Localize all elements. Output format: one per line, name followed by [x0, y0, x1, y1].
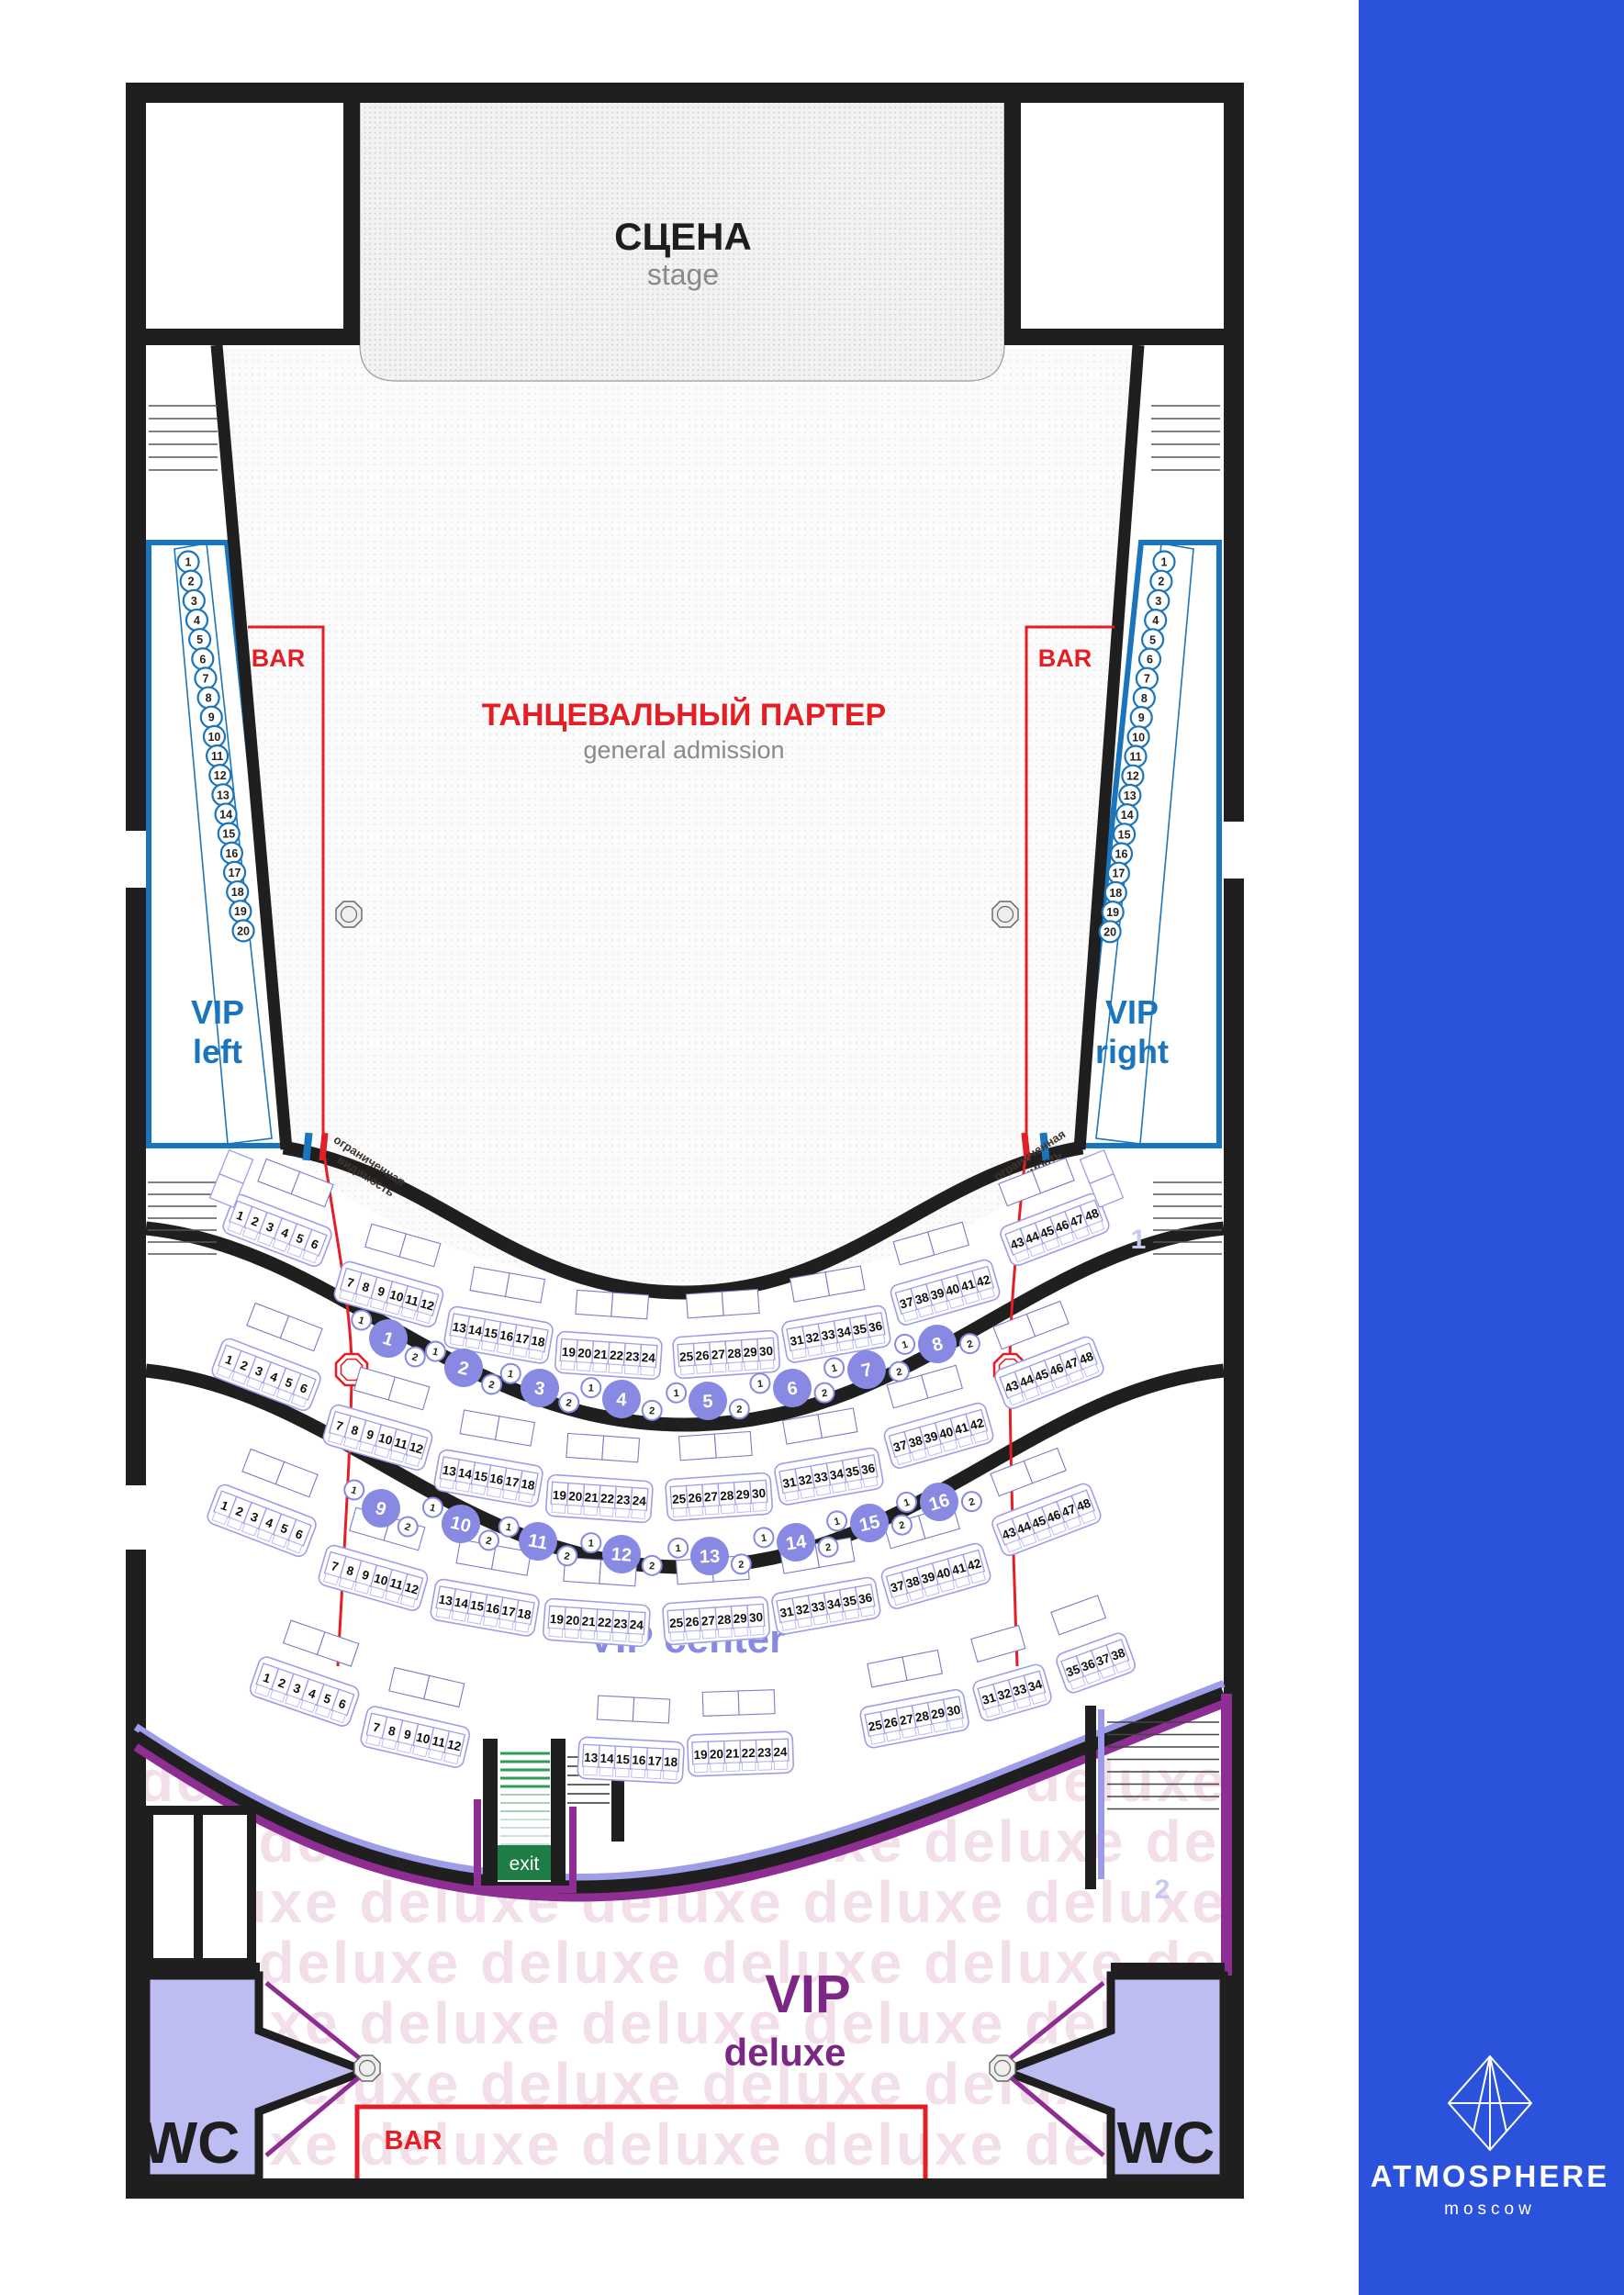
seat-number: 31 — [781, 1475, 798, 1491]
seat-number: 36 — [860, 1461, 877, 1476]
seat-number: 15 — [616, 1752, 631, 1767]
vip-right-seat-number: 5 — [1149, 633, 1156, 646]
vip-right-seat-number: 8 — [1141, 692, 1148, 705]
seat-number: 13 — [584, 1751, 599, 1765]
seat-number: 30 — [946, 1703, 962, 1719]
seat-back — [452, 1611, 466, 1621]
seat-number: 20 — [566, 1613, 580, 1628]
table-rect — [678, 1434, 716, 1461]
seat-back — [734, 1628, 748, 1637]
seat-number: 36 — [868, 1318, 884, 1334]
seat-back — [737, 1504, 751, 1513]
wc-right-label: WC — [1117, 2110, 1215, 2176]
seat-number: 21 — [584, 1490, 599, 1505]
stair-right-periwinkle — [1098, 1709, 1104, 1879]
seat-back — [565, 1629, 578, 1639]
table-rect — [714, 1431, 752, 1458]
seat-number: 13 — [442, 1463, 458, 1479]
seat-back — [483, 1617, 498, 1627]
seat-number: 15 — [469, 1598, 486, 1614]
seat-number: 15 — [473, 1469, 489, 1484]
seat-back — [705, 1506, 719, 1515]
table-seat-marker-number: 2 — [738, 1560, 745, 1571]
seat-number: 19 — [552, 1488, 566, 1503]
vip-left-seat-number: 7 — [202, 672, 208, 685]
seat-number: 21 — [593, 1347, 609, 1361]
vip-right-seat-number: 16 — [1115, 848, 1128, 861]
seat-number: 25 — [669, 1616, 685, 1630]
table-rect — [597, 1696, 633, 1721]
seat-back — [847, 1480, 862, 1490]
table-seat-marker-number: 1 — [675, 1543, 681, 1554]
vip-left-label-1: VIP — [191, 993, 244, 1031]
seat-number: 18 — [530, 1334, 546, 1349]
table-seat-marker-number: 1 — [588, 1538, 594, 1549]
seat-number: 17 — [504, 1474, 520, 1490]
seat-back — [711, 1763, 724, 1772]
seat-back — [823, 1343, 838, 1353]
seat-number: 22 — [598, 1616, 612, 1630]
seat-back — [726, 1763, 740, 1771]
seat-back — [549, 1628, 563, 1637]
column — [336, 901, 362, 927]
seat-number: 32 — [794, 1602, 810, 1618]
seat-back — [687, 1630, 700, 1640]
seat-back — [615, 1768, 629, 1777]
seat-number: 20 — [577, 1346, 592, 1360]
vip-left-seat-number: 11 — [211, 750, 223, 763]
seat-number: 33 — [821, 1327, 837, 1342]
vip-left-seat-number: 5 — [196, 633, 203, 646]
vip-left-seat-number: 17 — [229, 867, 241, 879]
seat-back — [503, 1490, 518, 1500]
table-seat-marker-number: 1 — [673, 1388, 679, 1399]
stage-right-wall — [1004, 93, 1021, 345]
table-rect — [633, 1697, 669, 1723]
seat-number: 27 — [711, 1348, 725, 1362]
vip-right-seat-number: 9 — [1138, 711, 1145, 724]
table-number: 14 — [785, 1531, 809, 1554]
vip-left-seat-number: 6 — [199, 653, 206, 666]
seat-number: 27 — [899, 1712, 915, 1729]
exit-shaft-right-wall — [551, 1739, 566, 1886]
vip-left-label-2: left — [193, 1033, 242, 1070]
seat-back — [629, 1633, 643, 1642]
table-rect — [738, 1690, 775, 1715]
seat-back — [753, 1502, 767, 1511]
vip-right-seat-number: 10 — [1132, 731, 1145, 744]
vip-right-seat-number: 17 — [1112, 868, 1125, 880]
stair-level-1: 1 — [1131, 1225, 1147, 1255]
vip-right-seat-number: 18 — [1109, 887, 1122, 900]
seat-number: 32 — [797, 1472, 812, 1488]
left-room-wall — [136, 329, 360, 345]
vip-left-seat-number: 10 — [207, 731, 220, 744]
seat-number: 31 — [778, 1605, 795, 1620]
venue-seating-map: СЦЕНА stage deluxe deluxe deluxe deluxe … — [0, 0, 1624, 2295]
seat-back — [440, 1479, 454, 1489]
seat-back — [584, 1506, 598, 1516]
seat-back — [689, 1506, 703, 1516]
seat-number: 24 — [629, 1618, 644, 1632]
seat-back — [612, 1632, 626, 1641]
seat-back — [673, 1507, 687, 1517]
ga-subtitle: general admission — [583, 736, 784, 764]
table-number: 13 — [700, 1547, 721, 1568]
seat-number: 18 — [516, 1606, 532, 1622]
seat-number: 23 — [613, 1617, 629, 1631]
deluxe-right-purple-wall — [1221, 1694, 1232, 1976]
seat-back — [855, 1338, 869, 1348]
seat-number: 30 — [748, 1610, 763, 1625]
seat-number: 16 — [498, 1328, 515, 1344]
vip-right-seat-number: 2 — [1158, 576, 1164, 588]
seat-back — [742, 1762, 756, 1770]
seat-number: 22 — [600, 1492, 615, 1506]
seat-back — [712, 1363, 726, 1372]
bar-right-label: BAR — [1038, 644, 1092, 672]
seat-back — [465, 1338, 480, 1349]
exit-shaft-left-wall — [483, 1739, 498, 1886]
seat-back — [624, 1365, 638, 1374]
vip-right-label-1: VIP — [1105, 993, 1159, 1031]
seat-back — [782, 1620, 797, 1630]
seat-number: 20 — [568, 1489, 583, 1504]
left-door-gap — [126, 831, 146, 888]
seat-number: 27 — [703, 1490, 718, 1505]
vip-right-seat-number: 6 — [1147, 654, 1153, 666]
vip-deluxe-title: VIP — [765, 1965, 851, 2024]
seat-number: 32 — [804, 1330, 820, 1346]
seat-number: 26 — [688, 1491, 703, 1506]
seat-back — [584, 1766, 598, 1775]
wc-left-label: WC — [142, 2110, 241, 2176]
seat-back — [599, 1767, 613, 1776]
vip-left-seat-number: 4 — [194, 614, 200, 627]
seat-number: 24 — [641, 1350, 656, 1365]
seat-number: 28 — [717, 1612, 733, 1627]
seat-back — [813, 1615, 828, 1625]
seat-back — [499, 1619, 514, 1629]
seat-number: 14 — [457, 1466, 474, 1482]
seat-number: 23 — [625, 1349, 641, 1364]
seat-back — [597, 1631, 610, 1640]
seat-back — [774, 1761, 788, 1769]
seat-number: 16 — [488, 1472, 505, 1487]
seat-number: 27 — [700, 1614, 715, 1629]
seat-back — [567, 1506, 581, 1515]
seat-back — [615, 1508, 629, 1517]
seat-number: 22 — [741, 1746, 756, 1761]
seat-number: 13 — [452, 1320, 468, 1336]
seat-back — [670, 1631, 684, 1640]
seat-number: 15 — [483, 1326, 499, 1341]
seat-number: 31 — [789, 1333, 805, 1349]
seat-back — [450, 1336, 465, 1346]
seat-number: 25 — [679, 1349, 695, 1364]
seat-back — [641, 1366, 655, 1375]
right-room-wall — [1010, 329, 1234, 345]
seat-number: 24 — [632, 1494, 647, 1508]
seat-number: 14 — [599, 1752, 614, 1766]
stage-title: СЦЕНА — [614, 215, 752, 258]
seat-number: 29 — [743, 1345, 757, 1360]
seat-number: 14 — [454, 1595, 470, 1611]
vip-right-seat-number: 4 — [1152, 614, 1159, 627]
stairwell-divider — [194, 1810, 203, 1963]
bar-bottom-label: BAR — [385, 2126, 442, 2155]
seat-back — [758, 1762, 772, 1770]
vip-deluxe-subtitle: deluxe — [723, 2031, 846, 2074]
seat-back — [702, 1629, 716, 1639]
seat-number: 35 — [845, 1463, 861, 1479]
seat-back — [792, 1349, 807, 1359]
seat-back — [680, 1365, 694, 1374]
seat-number: 22 — [610, 1349, 624, 1363]
table-rect — [611, 1293, 649, 1319]
seat-number: 23 — [757, 1745, 772, 1760]
seat-number: 14 — [467, 1323, 484, 1338]
table-rect — [702, 1691, 739, 1716]
floor-plan-svg: СЦЕНА stage deluxe deluxe deluxe deluxe … — [0, 0, 1624, 2295]
seat-back — [515, 1622, 530, 1632]
seat-back — [455, 1482, 470, 1492]
exit-label: exit — [510, 1853, 540, 1875]
sidebar-band — [1359, 0, 1624, 2295]
vip-left-seat-number: 3 — [191, 595, 197, 608]
vip-right-seat-number: 14 — [1121, 809, 1134, 822]
table-number: 11 — [526, 1530, 549, 1553]
column — [990, 2055, 1015, 2081]
seat-number: 28 — [720, 1488, 735, 1503]
vip-left-seat-number: 1 — [185, 556, 192, 569]
seat-number: 34 — [829, 1466, 846, 1482]
seat-number: 35 — [842, 1593, 858, 1608]
column — [992, 901, 1018, 927]
vip-left-seat-number: 13 — [217, 789, 230, 801]
seat-number: 30 — [758, 1344, 773, 1359]
seat-number: 21 — [581, 1614, 597, 1629]
seat-back — [519, 1493, 533, 1503]
seat-back — [745, 1361, 758, 1371]
table-rect — [602, 1436, 640, 1462]
table-number: 12 — [610, 1544, 633, 1565]
seat-back — [632, 1769, 645, 1778]
seat-back — [581, 1630, 595, 1640]
seat-back — [593, 1363, 607, 1372]
seat-back — [663, 1771, 677, 1780]
stage-subtitle: stage — [647, 258, 719, 291]
seat-number: 36 — [857, 1590, 874, 1606]
table-rect — [576, 1290, 613, 1316]
seat-back — [816, 1485, 831, 1495]
seat-back — [632, 1509, 645, 1518]
table-seat-marker-number: 2 — [649, 1405, 655, 1416]
vip-left-seat-number: 2 — [188, 576, 195, 588]
seat-number: 17 — [514, 1331, 530, 1347]
seat-back — [609, 1364, 622, 1373]
seat-back — [728, 1362, 742, 1371]
seat-number: 21 — [725, 1747, 740, 1762]
vip-left-seat-number: 9 — [208, 711, 215, 724]
seat-back — [577, 1362, 590, 1371]
brand-city: moscow — [1444, 2200, 1536, 2219]
seat-back — [760, 1360, 774, 1369]
vip-left-seat-number: 18 — [231, 886, 244, 899]
seat-back — [694, 1763, 708, 1772]
table-seat-marker-number: 1 — [588, 1383, 594, 1394]
seat-number: 33 — [811, 1598, 827, 1614]
table-rect — [722, 1289, 759, 1315]
seat-number: 33 — [813, 1469, 830, 1484]
seat-number: 34 — [826, 1595, 843, 1611]
left-lower-door-gap — [126, 1485, 146, 1550]
seat-number: 29 — [930, 1706, 946, 1722]
seat-number: 19 — [549, 1612, 564, 1627]
seat-back — [647, 1770, 661, 1779]
vip-left-seat-number: 16 — [225, 847, 238, 860]
seat-number: 23 — [616, 1493, 632, 1507]
seat-number: 35 — [852, 1321, 868, 1337]
table-rect — [566, 1433, 604, 1460]
column — [354, 2055, 380, 2081]
vip-right-seat-number: 13 — [1124, 789, 1137, 802]
seat-back — [721, 1505, 734, 1514]
seat-back — [697, 1364, 711, 1373]
seat-number: 18 — [664, 1754, 678, 1769]
seat-back — [487, 1487, 501, 1497]
seat-number: 26 — [695, 1349, 711, 1363]
seat-back — [497, 1344, 511, 1354]
seat-number: 29 — [733, 1611, 747, 1626]
seat-number: 28 — [727, 1346, 743, 1360]
seat-back — [808, 1346, 823, 1356]
seat-back — [870, 1335, 885, 1345]
seat-back — [829, 1612, 844, 1622]
stair-right-wall — [1085, 1706, 1096, 1889]
seat-number: 17 — [647, 1753, 662, 1768]
seat-number: 19 — [693, 1748, 708, 1763]
table-rect — [686, 1292, 723, 1318]
vip-left-seat-number: 20 — [237, 924, 250, 937]
seat-number: 34 — [836, 1324, 853, 1339]
table-seat-marker-number: 2 — [736, 1405, 743, 1416]
vip-left-seat-number: 19 — [234, 905, 247, 918]
vip-right-seat-number: 7 — [1144, 673, 1150, 686]
vip-right-label-2: right — [1095, 1033, 1169, 1070]
seat-back — [785, 1491, 800, 1501]
brand-name: ATMOSPHERE — [1371, 2159, 1609, 2193]
seat-back — [529, 1349, 543, 1360]
seat-back — [801, 1488, 815, 1498]
seat-back — [481, 1341, 496, 1351]
seat-number: 20 — [710, 1747, 724, 1762]
vip-right-seat-number: 3 — [1155, 595, 1161, 608]
stair-level-2: 2 — [1155, 1875, 1170, 1905]
vip-right-seat-number: 15 — [1118, 828, 1131, 841]
right-door-gap — [1224, 822, 1244, 879]
vip-right-seat-number: 12 — [1126, 770, 1139, 783]
seat-back — [832, 1483, 846, 1493]
seat-back — [599, 1507, 613, 1517]
seat-back — [863, 1477, 878, 1487]
seat-back — [750, 1626, 764, 1635]
bar-left-label: BAR — [252, 644, 306, 672]
seat-back — [839, 1340, 854, 1350]
ga-title: ТАНЦЕВАЛЬНЫЙ ПАРТЕР — [482, 697, 886, 733]
seat-back — [845, 1609, 859, 1619]
seat-number: 18 — [520, 1477, 536, 1493]
seat-back — [471, 1484, 486, 1495]
seat-back — [561, 1360, 575, 1370]
vip-left-seat-number: 12 — [214, 769, 227, 782]
vip-right-seat-number: 20 — [1103, 925, 1116, 938]
vip-left-seat-number: 15 — [222, 828, 235, 841]
seat-back — [552, 1504, 566, 1513]
seat-back — [718, 1629, 732, 1638]
seat-back — [798, 1618, 812, 1628]
vip-right-seat-number: 19 — [1106, 906, 1119, 919]
seat-number: 13 — [438, 1593, 454, 1608]
vip-right-seat-number: 11 — [1129, 751, 1141, 764]
seat-number: 24 — [773, 1745, 788, 1760]
seat-back — [467, 1614, 482, 1624]
seat-back — [513, 1347, 528, 1357]
vip-right-seat-number: 1 — [1161, 556, 1168, 569]
stage-left-wall — [343, 93, 360, 345]
seat-number: 17 — [500, 1604, 516, 1619]
seat-number: 19 — [561, 1345, 576, 1360]
vip-left-seat-number: 14 — [219, 808, 232, 821]
seat-back — [860, 1606, 875, 1617]
seat-number: 16 — [485, 1601, 501, 1617]
vip-left-seat-number: 8 — [206, 692, 212, 705]
seat-number: 30 — [751, 1486, 766, 1501]
seat-back — [436, 1608, 451, 1618]
table-seat-marker-number: 2 — [649, 1561, 655, 1572]
seat-number: 16 — [632, 1753, 646, 1768]
seat-number: 25 — [672, 1492, 688, 1506]
seat-number: 29 — [735, 1487, 750, 1502]
seat-number: 26 — [685, 1615, 700, 1629]
table-number: 5 — [702, 1392, 713, 1412]
